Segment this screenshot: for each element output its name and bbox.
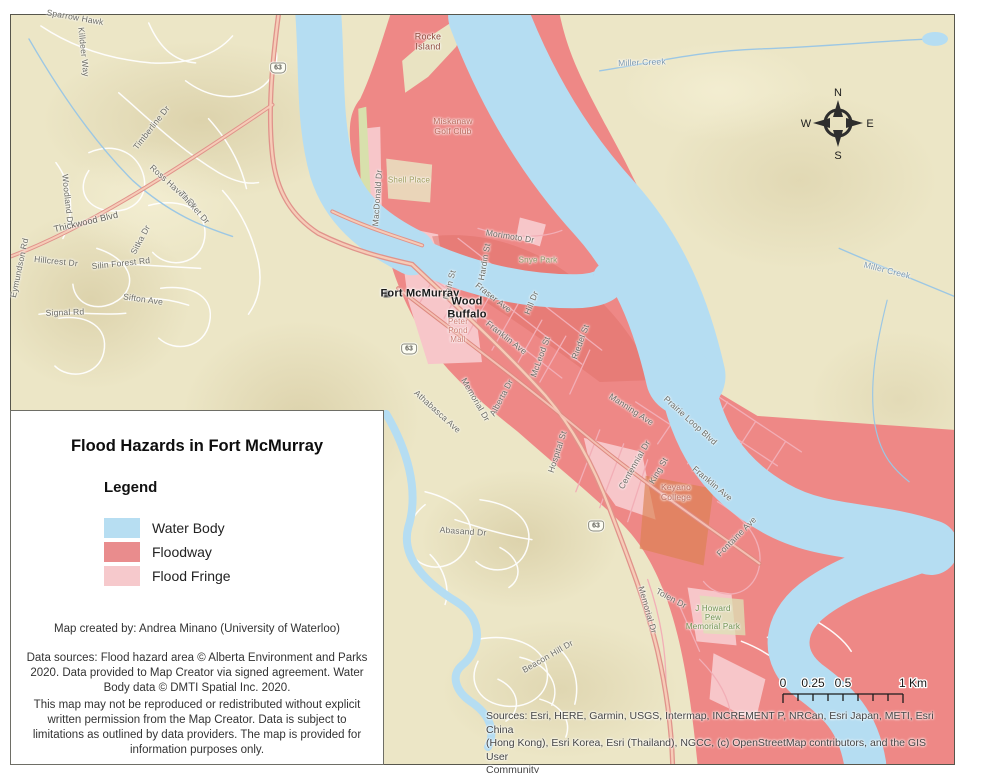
compass-n: N [834,87,842,99]
scale-ticks [783,694,903,703]
memorial-park-patch [700,595,746,635]
legend-panel: Flood Hazards in Fort McMurray Legend Wa… [10,410,384,765]
pond [922,32,948,46]
legend-heading: Legend [104,479,157,496]
map-title: Flood Hazards in Fort McMurray [11,437,383,456]
legend-item-label: Floodway [152,544,212,560]
compass-e: E [866,118,873,130]
city-marker-fort-mcmurray [384,291,391,298]
scale-label-05: 0.5 [835,676,852,690]
floodway-swatch [104,542,140,562]
map-document: Sparrow Hawk Killdeer Way Timberline Dr … [0,0,1000,773]
scale-label-025: 0.25 [801,676,825,690]
legend-item-flood-fringe: Flood Fringe [104,566,231,586]
data-sources-credit: Data sources: Flood hazard area © Albert… [11,651,383,696]
compass-rose: N S W E [795,85,885,165]
map-author-credit: Map created by: Andrea Minano (Universit… [11,622,383,637]
compass-w: W [801,118,812,130]
scale-bar: 0 0.25 0.5 1 Km [770,672,945,714]
flood-fringe-swatch [104,566,140,586]
legend-item-floodway: Floodway [104,542,212,562]
compass-s: S [834,150,841,162]
water-body-swatch [104,518,140,538]
legend-item-label: Flood Fringe [152,568,231,584]
scale-label-1km: 1 Km [899,676,927,690]
shell-place-patch [386,159,432,203]
disclaimer-text: This map may not be reproduced or redist… [11,698,383,758]
scale-label-0: 0 [780,676,787,690]
legend-item-label: Water Body [152,520,225,536]
attribution-text: Sources: Esri, HERE, Garmin, USGS, Inter… [486,710,950,773]
legend-item-water-body: Water Body [104,518,225,538]
